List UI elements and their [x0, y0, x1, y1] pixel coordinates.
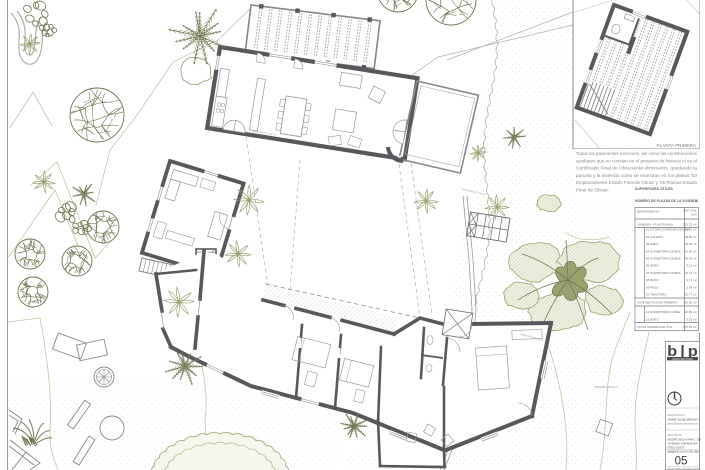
svg-text:26.28 m²: 26.28 m²	[685, 242, 697, 246]
svg-text:Final de Obras'.: Final de Obras'.	[576, 188, 610, 194]
svg-text:MODIFICADO A PARC. 158: MODIFICADO A PARC. 158	[668, 438, 702, 442]
svg-text:04 DORMITORIO DOBLE: 04 DORMITORIO DOBLE	[646, 249, 681, 253]
svg-text:VIVIENDA UNIFAMILIAR: VIVIENDA UNIFAMILIAR	[668, 442, 698, 446]
svg-text:06 BAÑO: 06 BAÑO	[646, 263, 659, 268]
svg-text:VIVIENDA - PLANTA BAJA: VIVIENDA - PLANTA BAJA	[637, 223, 673, 227]
svg-text:07 DORMITORIO DOBLE: 07 DORMITORIO DOBLE	[646, 271, 681, 275]
svg-text:(m²): (m²)	[691, 213, 696, 217]
svg-text:SUPERFICIES ÚTILES: SUPERFICIES ÚTILES	[635, 186, 673, 191]
svg-text:Todos los pavimentos exteriore: Todos los pavimentos exteriores, así com…	[576, 151, 698, 157]
svg-text:10 TRASTERO: 10 TRASTERO	[646, 293, 667, 297]
svg-text:Nº: Nº	[695, 450, 698, 454]
svg-text:JAIME SUSELBROWN: JAIME SUSELBROWN	[668, 418, 699, 422]
svg-text:parcela y la vivienda como se: parcela y la vivienda como se muestran e…	[576, 173, 697, 179]
svg-text:05 DORMITORIO DOBLE: 05 DORMITORIO DOBLE	[646, 257, 681, 261]
svg-text:Emplazamiento-Estado Final de: Emplazamiento-Estado Final de Obras' y '…	[576, 180, 697, 186]
svg-text:PLANO: PLANO	[668, 450, 677, 454]
svg-text:09 PASO: 09 PASO	[646, 285, 659, 289]
svg-text:29.80 m²: 29.80 m²	[685, 235, 697, 239]
svg-text:ARQUITECTO: ARQUITECTO	[668, 413, 685, 417]
svg-text:26.34 m²: 26.34 m²	[685, 257, 697, 261]
svg-text:PROYECTO: PROYECTO	[668, 433, 683, 437]
svg-text:Certificado Final de Obra será: Certificado Final de Obra serán eliminad…	[576, 166, 697, 172]
svg-text:TOTAL SUPERFICIE ÚTIL: TOTAL SUPERFICIE ÚTIL	[637, 324, 673, 329]
svg-text:PLANTA PRIMERA: PLANTA PRIMERA	[657, 143, 697, 148]
svg-text:13.90 m²: 13.90 m²	[685, 249, 697, 253]
svg-text:DEPENDENCIA: DEPENDENCIA	[637, 210, 660, 214]
svg-text:3.51 m²: 3.51 m²	[686, 317, 696, 321]
svg-text:jaime@blparquitectura.com: jaime@blparquitectura.com	[667, 423, 698, 426]
svg-text:3.71 m²: 3.71 m²	[686, 278, 696, 282]
svg-text:12 BAÑO: 12 BAÑO	[646, 316, 659, 321]
svg-text:01 ESTAR-COMEDOR-COCINA: 01 ESTAR-COMEDOR-COCINA	[646, 228, 689, 232]
svg-text:36.26 m²: 36.26 m²	[685, 301, 697, 305]
svg-text:SUPERFICIE 215 m²: SUPERFICIE 215 m²	[594, 385, 618, 389]
svg-text:ARQUITECTURA: ARQUITECTURA	[672, 357, 693, 361]
svg-text:5.13 m²: 5.13 m²	[686, 264, 696, 268]
svg-text:56.81 m²: 56.81 m²	[685, 228, 697, 232]
svg-text:6: 6	[695, 199, 697, 203]
svg-text:11 DORMITORIO DOBLE: 11 DORMITORIO DOBLE	[646, 310, 680, 314]
svg-text:NÚMERO DE PLAZAS DE LA VIVIEND: NÚMERO DE PLAZAS DE LA VIVIENDA	[635, 198, 699, 203]
svg-text:15.77 m²: 15.77 m²	[685, 293, 697, 297]
svg-text:2.89 m²: 2.89 m²	[686, 285, 696, 289]
svg-text:07819 JESÚS: 07819 JESÚS	[668, 446, 685, 450]
svg-text:22.89 m²: 22.89 m²	[685, 310, 697, 314]
svg-text:VIVIENDA PLANTA PRIMERA: VIVIENDA PLANTA PRIMERA	[637, 301, 677, 305]
svg-text:05: 05	[675, 456, 688, 468]
svg-text:03 ASEO: 03 ASEO	[646, 242, 659, 246]
svg-text:16.73 m²: 16.73 m²	[685, 271, 697, 275]
svg-text:276.87 m²: 276.87 m²	[683, 325, 697, 329]
svg-text:auxiliares que no constan en e: auxiliares que no constan en el proyecto…	[576, 158, 697, 164]
svg-text:08 BAÑO: 08 BAÑO	[646, 277, 659, 282]
svg-text:215.22 m²: 215.22 m²	[683, 223, 697, 227]
svg-text:02 GALERÍA: 02 GALERÍA	[646, 235, 663, 239]
